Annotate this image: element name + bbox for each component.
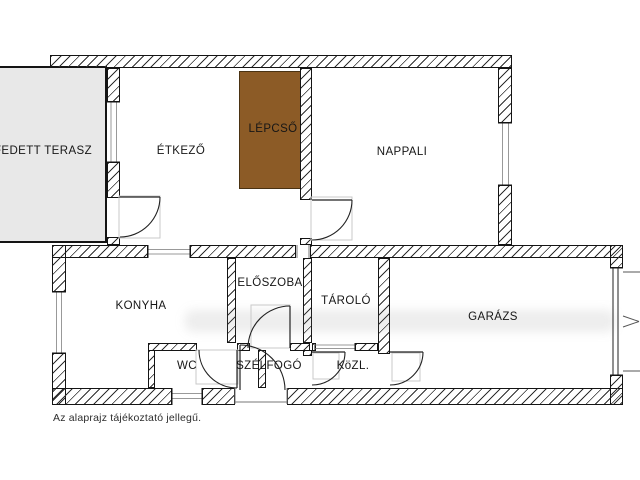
- wall-segment: [300, 68, 312, 200]
- window-storage-wall: [315, 343, 355, 351]
- plan-disclaimer: Az alaprajz tájékoztató jellegű.: [53, 412, 201, 424]
- wall-segment: [190, 245, 296, 258]
- wall-segment: [498, 68, 512, 123]
- wall-segment: [148, 343, 197, 351]
- door-frame-hall-opening: [297, 245, 309, 258]
- wall-segment: [287, 388, 623, 405]
- wall-segment: [107, 162, 120, 198]
- wall-segment: [610, 375, 623, 405]
- room-label-kozl: KöZL.: [337, 360, 370, 372]
- wall-segment: [52, 388, 172, 405]
- door-terrace: [119, 196, 160, 238]
- window-terrace-wall: [107, 102, 120, 162]
- wall-segment: [107, 237, 120, 245]
- wall-segment: [303, 350, 312, 356]
- room-label-szelfogo: SZÉLFOGÓ: [236, 360, 302, 372]
- wall-segment: [202, 388, 235, 405]
- wall-segment: [610, 245, 623, 268]
- wall-segment: [498, 185, 512, 245]
- window-wc-bottom-wall: [172, 388, 202, 405]
- wall-segment: [237, 343, 250, 351]
- window-kitchen-left-wall: [52, 292, 66, 353]
- wall-segment: [300, 238, 312, 245]
- room-label-tarolo: TÁROLÓ: [321, 295, 371, 307]
- wall-segment: [310, 245, 623, 258]
- room-label-eloszoba: ELŐSZOBA: [237, 277, 302, 289]
- window-livingroom-wall: [498, 123, 512, 185]
- wall-segment: [52, 245, 66, 292]
- room-label-konyha: KONYHA: [116, 300, 167, 312]
- door-wc: [196, 350, 238, 388]
- wall-segment: [107, 68, 120, 102]
- room-label-garazs: GARÁZS: [468, 311, 518, 323]
- room-label-fedett-terasz: FEDETT TERASZ: [0, 145, 92, 157]
- room-label-nappali: NAPPALI: [377, 146, 428, 158]
- room-label-wc: WC: [177, 360, 197, 372]
- door-garage-inner: [390, 352, 423, 385]
- wall-segment: [52, 245, 148, 258]
- room-label-lepcso: LÉPCSŐ: [248, 123, 297, 135]
- door-livingroom: [311, 197, 352, 240]
- window-kitchen-dining-wall: [148, 245, 190, 258]
- watermark: [185, 310, 615, 332]
- wall-segment: [355, 343, 378, 351]
- room-label-etkezo: ÉTKEZŐ: [157, 145, 205, 157]
- wall-segment: [50, 55, 512, 68]
- wall-segment: [148, 350, 155, 388]
- wall-segment: [378, 258, 390, 354]
- wall-segment: [312, 343, 316, 351]
- floor-plan: FEDETT TERASZ ÉTKEZŐ LÉPCSŐ NAPPALI KONY…: [0, 0, 640, 480]
